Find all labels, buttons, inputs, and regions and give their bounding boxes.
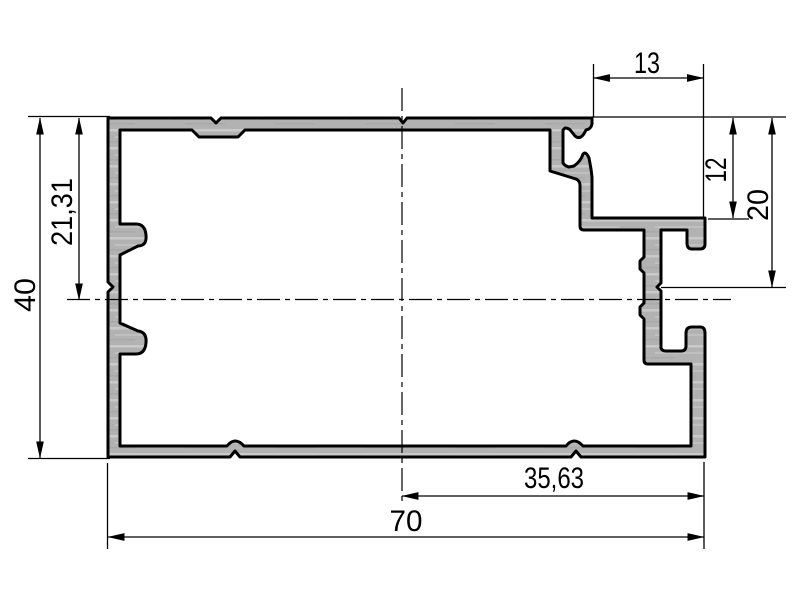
centerlines (67, 88, 731, 502)
profile-metal-texture (108, 118, 705, 457)
profile-drawing: 40 21,31 13 12 20 35,63 70 (0, 0, 800, 600)
profile-outline (108, 118, 705, 457)
dim-label-overall-width: 70 (390, 505, 423, 538)
dim-label-right-section-width: 35,63 (524, 462, 584, 495)
profile-cross-section (108, 118, 705, 457)
dim-label-axis-offset: 21,31 (46, 178, 79, 246)
extension-lines (28, 64, 786, 549)
dim-label-channel-axis-depth: 20 (742, 189, 775, 221)
dim-label-rebate-depth: 12 (700, 158, 733, 183)
technical-drawing-canvas: 40 21,31 13 12 20 35,63 70 (0, 0, 800, 600)
dim-label-overall-height: 40 (9, 278, 42, 312)
profile-fill (108, 118, 705, 457)
dim-label-rebate-width: 13 (634, 47, 660, 80)
